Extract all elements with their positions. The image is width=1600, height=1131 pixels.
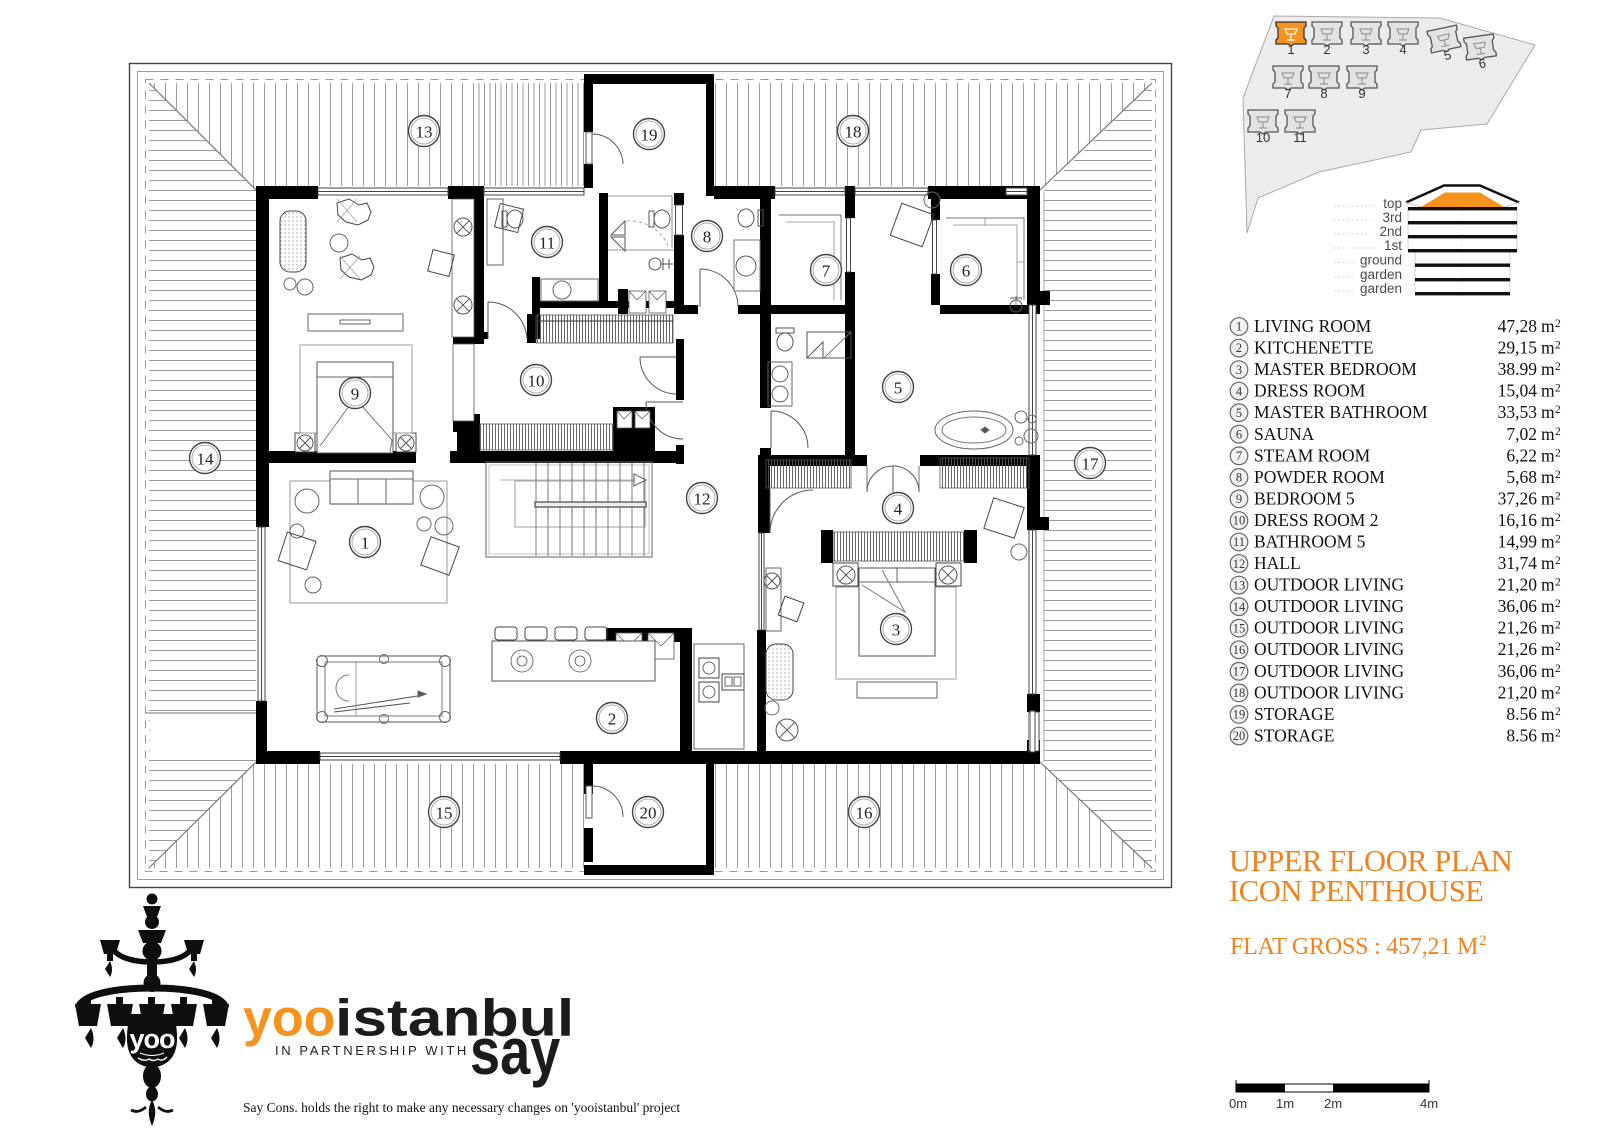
svg-text:7: 7 xyxy=(822,262,831,281)
svg-text:m: m xyxy=(1541,424,1555,444)
svg-text:14: 14 xyxy=(197,450,215,469)
svg-text:MASTER BATHROOM: MASTER BATHROOM xyxy=(1254,402,1428,422)
svg-text:2: 2 xyxy=(1555,555,1561,567)
svg-text:6,22: 6,22 xyxy=(1506,445,1537,465)
svg-text:m: m xyxy=(1541,704,1555,724)
svg-text:12: 12 xyxy=(694,490,711,509)
svg-text:garden: garden xyxy=(1360,281,1402,296)
svg-text:11: 11 xyxy=(1293,130,1307,145)
svg-text:2: 2 xyxy=(1555,620,1561,632)
svg-text:12: 12 xyxy=(1233,557,1246,571)
svg-text:0m: 0m xyxy=(1229,1096,1247,1111)
svg-text:15: 15 xyxy=(436,804,453,823)
svg-text:2: 2 xyxy=(1555,728,1561,740)
svg-text:20: 20 xyxy=(640,804,657,823)
svg-text:m: m xyxy=(1541,553,1555,573)
svg-text:m: m xyxy=(1541,726,1555,746)
svg-text:ground: ground xyxy=(1360,253,1402,268)
svg-text:2: 2 xyxy=(1236,341,1242,355)
svg-text:38.99: 38.99 xyxy=(1498,359,1538,379)
svg-text:2: 2 xyxy=(1555,512,1561,524)
svg-text:2: 2 xyxy=(608,710,617,729)
svg-text:UPPER FLOOR PLAN: UPPER FLOOR PLAN xyxy=(1229,844,1513,878)
svg-text:3: 3 xyxy=(892,621,901,640)
svg-text:10: 10 xyxy=(1256,130,1270,145)
svg-text:21,20: 21,20 xyxy=(1498,575,1538,595)
svg-text:21,20: 21,20 xyxy=(1498,682,1538,702)
svg-text:13: 13 xyxy=(1233,578,1246,592)
svg-text:1: 1 xyxy=(361,534,370,553)
svg-text:1m: 1m xyxy=(1276,1096,1294,1111)
svg-text:m: m xyxy=(1541,381,1555,401)
svg-text:5: 5 xyxy=(894,379,903,398)
svg-text:KITCHENETTE: KITCHENETTE xyxy=(1254,338,1374,358)
svg-text:2: 2 xyxy=(1555,361,1561,373)
svg-text:STEAM ROOM: STEAM ROOM xyxy=(1254,445,1371,465)
svg-text:7,02: 7,02 xyxy=(1506,424,1537,444)
svg-text:m: m xyxy=(1541,338,1555,358)
svg-text:3: 3 xyxy=(1362,42,1369,57)
svg-text:garden: garden xyxy=(1360,267,1402,282)
svg-text:2: 2 xyxy=(1555,534,1561,546)
svg-text:ICON PENTHOUSE: ICON PENTHOUSE xyxy=(1229,874,1484,908)
svg-text:LIVING ROOM: LIVING ROOM xyxy=(1254,316,1372,336)
svg-text:2m: 2m xyxy=(1324,1096,1342,1111)
svg-text:21,26: 21,26 xyxy=(1498,639,1538,659)
svg-text:SAUNA: SAUNA xyxy=(1254,424,1315,444)
svg-text:m: m xyxy=(1541,359,1555,379)
svg-text:2: 2 xyxy=(1555,404,1561,416)
svg-text:47,28: 47,28 xyxy=(1498,316,1538,336)
svg-text:5,68: 5,68 xyxy=(1506,467,1537,487)
svg-text:31,74: 31,74 xyxy=(1498,553,1538,573)
svg-text:DRESS ROOM 2: DRESS ROOM 2 xyxy=(1254,510,1378,530)
svg-text:11: 11 xyxy=(1233,535,1245,549)
svg-text:3: 3 xyxy=(1236,363,1242,377)
svg-text:BATHROOM 5: BATHROOM 5 xyxy=(1254,532,1366,552)
svg-text:4m: 4m xyxy=(1420,1096,1438,1111)
svg-text:2: 2 xyxy=(1555,447,1561,459)
svg-text:16: 16 xyxy=(856,804,873,823)
svg-text:14: 14 xyxy=(1233,600,1246,614)
svg-text:9: 9 xyxy=(351,385,360,404)
svg-text:9: 9 xyxy=(1358,86,1365,101)
svg-text:POWDER ROOM: POWDER ROOM xyxy=(1254,467,1385,487)
svg-text:Say Cons. holds the right to m: Say Cons. holds the right to make any ne… xyxy=(243,1100,680,1115)
svg-text:1: 1 xyxy=(1287,42,1294,57)
svg-text:m: m xyxy=(1541,510,1555,530)
svg-text:7: 7 xyxy=(1236,449,1242,463)
svg-text:2: 2 xyxy=(1479,933,1487,949)
svg-text:29,15: 29,15 xyxy=(1498,338,1538,358)
svg-text:18: 18 xyxy=(845,123,862,142)
svg-text:10: 10 xyxy=(528,372,545,391)
svg-text:m: m xyxy=(1541,575,1555,595)
svg-text:2: 2 xyxy=(1555,318,1561,330)
svg-text:15: 15 xyxy=(1233,621,1246,635)
svg-text:m: m xyxy=(1541,682,1555,702)
svg-text:2: 2 xyxy=(1555,641,1561,653)
svg-text:8.56: 8.56 xyxy=(1506,704,1537,724)
svg-text:4: 4 xyxy=(1399,42,1406,57)
svg-text:2: 2 xyxy=(1555,577,1561,589)
svg-text:say: say xyxy=(470,1014,561,1088)
svg-text:2: 2 xyxy=(1323,42,1330,57)
svg-text:8: 8 xyxy=(703,228,712,247)
svg-text:BEDROOM 5: BEDROOM 5 xyxy=(1254,488,1355,508)
svg-text:17: 17 xyxy=(1233,665,1246,679)
svg-text:STORAGE: STORAGE xyxy=(1254,704,1334,724)
svg-text:2: 2 xyxy=(1555,684,1561,696)
svg-text:2: 2 xyxy=(1555,469,1561,481)
svg-text:1: 1 xyxy=(1236,320,1242,334)
svg-text:2nd: 2nd xyxy=(1379,224,1402,239)
svg-text:FLAT GROSS : 457,21 M: FLAT GROSS : 457,21 M xyxy=(1230,934,1478,960)
svg-text:4: 4 xyxy=(1236,384,1243,398)
svg-text:HALL: HALL xyxy=(1254,553,1301,573)
svg-text:5: 5 xyxy=(1236,406,1242,420)
svg-text:top: top xyxy=(1383,196,1402,211)
svg-text:8: 8 xyxy=(1236,471,1242,485)
svg-text:m: m xyxy=(1541,316,1555,336)
svg-text:DRESS ROOM: DRESS ROOM xyxy=(1254,381,1366,401)
svg-text:m: m xyxy=(1541,618,1555,638)
svg-text:20: 20 xyxy=(1233,729,1246,743)
svg-text:37,26: 37,26 xyxy=(1498,488,1538,508)
svg-text:OUTDOOR LIVING: OUTDOOR LIVING xyxy=(1254,575,1405,595)
svg-text:2: 2 xyxy=(1555,383,1561,395)
svg-text:16: 16 xyxy=(1233,643,1246,657)
svg-text:OUTDOOR LIVING: OUTDOOR LIVING xyxy=(1254,661,1405,681)
svg-text:11: 11 xyxy=(539,234,555,253)
svg-text:19: 19 xyxy=(641,126,658,145)
svg-text:3rd: 3rd xyxy=(1382,210,1402,225)
svg-text:2: 2 xyxy=(1555,663,1561,675)
svg-text:8: 8 xyxy=(1320,86,1327,101)
svg-text:13: 13 xyxy=(416,123,433,142)
svg-text:36,06: 36,06 xyxy=(1498,661,1538,681)
svg-text:19: 19 xyxy=(1233,708,1246,722)
svg-text:6: 6 xyxy=(962,262,971,281)
svg-text:m: m xyxy=(1541,488,1555,508)
svg-text:6: 6 xyxy=(1236,427,1242,441)
svg-text:OUTDOOR LIVING: OUTDOOR LIVING xyxy=(1254,639,1405,659)
svg-text:MASTER BEDROOM: MASTER BEDROOM xyxy=(1254,359,1417,379)
svg-text:2: 2 xyxy=(1555,426,1561,438)
svg-text:18: 18 xyxy=(1233,686,1246,700)
svg-text:m: m xyxy=(1541,661,1555,681)
svg-text:OUTDOOR LIVING: OUTDOOR LIVING xyxy=(1254,596,1405,616)
svg-text:m: m xyxy=(1541,532,1555,552)
svg-text:STORAGE: STORAGE xyxy=(1254,726,1334,746)
svg-text:1st: 1st xyxy=(1384,238,1402,253)
svg-text:IN PARTNERSHIP WITH: IN PARTNERSHIP WITH xyxy=(275,1043,469,1058)
svg-text:17: 17 xyxy=(1082,455,1100,474)
svg-text:8.56: 8.56 xyxy=(1506,726,1537,746)
svg-text:33,53: 33,53 xyxy=(1498,402,1538,422)
svg-text:16,16: 16,16 xyxy=(1498,510,1538,530)
svg-text:15,04: 15,04 xyxy=(1498,381,1538,401)
svg-text:2: 2 xyxy=(1555,598,1561,610)
svg-text:14,99: 14,99 xyxy=(1498,532,1538,552)
svg-text:yoo: yoo xyxy=(129,1024,175,1054)
svg-text:4: 4 xyxy=(894,500,903,519)
svg-text:m: m xyxy=(1541,467,1555,487)
svg-text:36,06: 36,06 xyxy=(1498,596,1538,616)
svg-text:m: m xyxy=(1541,596,1555,616)
svg-text:m: m xyxy=(1541,445,1555,465)
svg-text:2: 2 xyxy=(1555,340,1561,352)
svg-text:10: 10 xyxy=(1233,514,1246,528)
svg-text:7: 7 xyxy=(1284,86,1291,101)
svg-text:OUTDOOR LIVING: OUTDOOR LIVING xyxy=(1254,618,1405,638)
svg-text:2: 2 xyxy=(1555,490,1561,502)
svg-text:yoo: yoo xyxy=(243,990,335,1048)
svg-text:2: 2 xyxy=(1555,706,1561,718)
svg-text:21,26: 21,26 xyxy=(1498,618,1538,638)
svg-text:m: m xyxy=(1541,402,1555,422)
svg-text:OUTDOOR LIVING: OUTDOOR LIVING xyxy=(1254,682,1405,702)
svg-text:m: m xyxy=(1541,639,1555,659)
svg-text:9: 9 xyxy=(1236,492,1242,506)
